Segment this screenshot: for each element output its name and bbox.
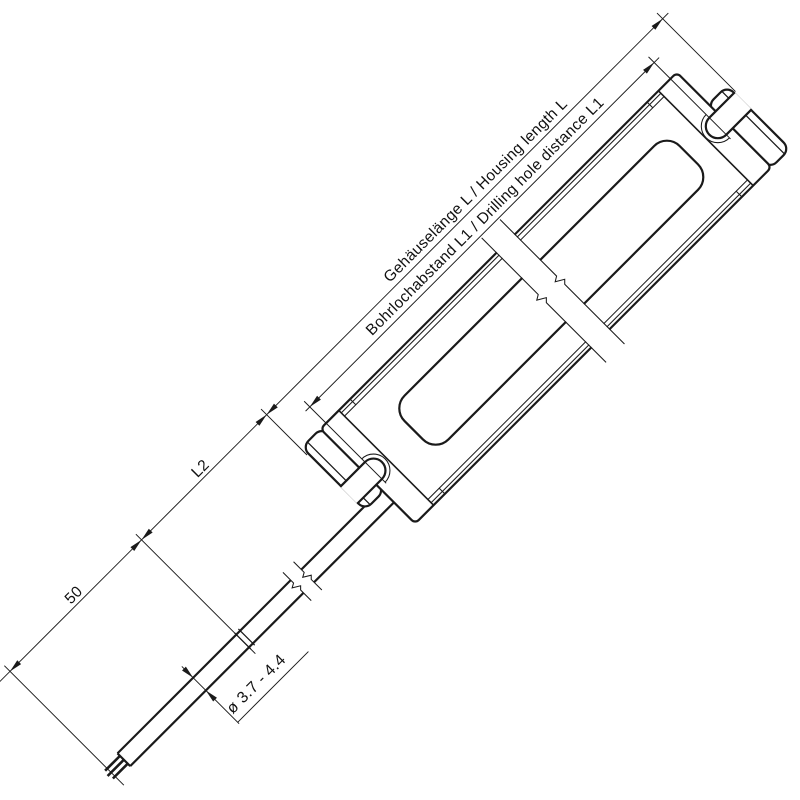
- label-cable-diameter: ø 3.7 - 4.4: [224, 651, 290, 717]
- cable-upper-edge: [117, 481, 389, 753]
- technical-drawing-page: Gehäuselänge L / Housing length L Bohrlo…: [0, 0, 800, 800]
- dimension-cable-diameter: ø 3.7 - 4.4: [180, 596, 310, 726]
- cable-break: [279, 559, 325, 605]
- extension-line-wire-tip: [4, 666, 124, 786]
- label-l2: L2: [188, 456, 213, 481]
- dimension-lead-length: 50: [0, 528, 255, 785]
- label-lead-length: 50: [62, 583, 87, 608]
- extension-line-sheath-mark: [136, 534, 256, 654]
- cable: [93, 473, 411, 791]
- rotated-drawing-group: Gehäuselänge L / Housing length L Bohrlo…: [0, 0, 800, 800]
- technical-drawing-canvas: Gehäuselänge L / Housing length L Bohrlo…: [0, 0, 800, 800]
- cable-lower-edge: [130, 494, 402, 766]
- extension-line-housing-left: [261, 409, 307, 455]
